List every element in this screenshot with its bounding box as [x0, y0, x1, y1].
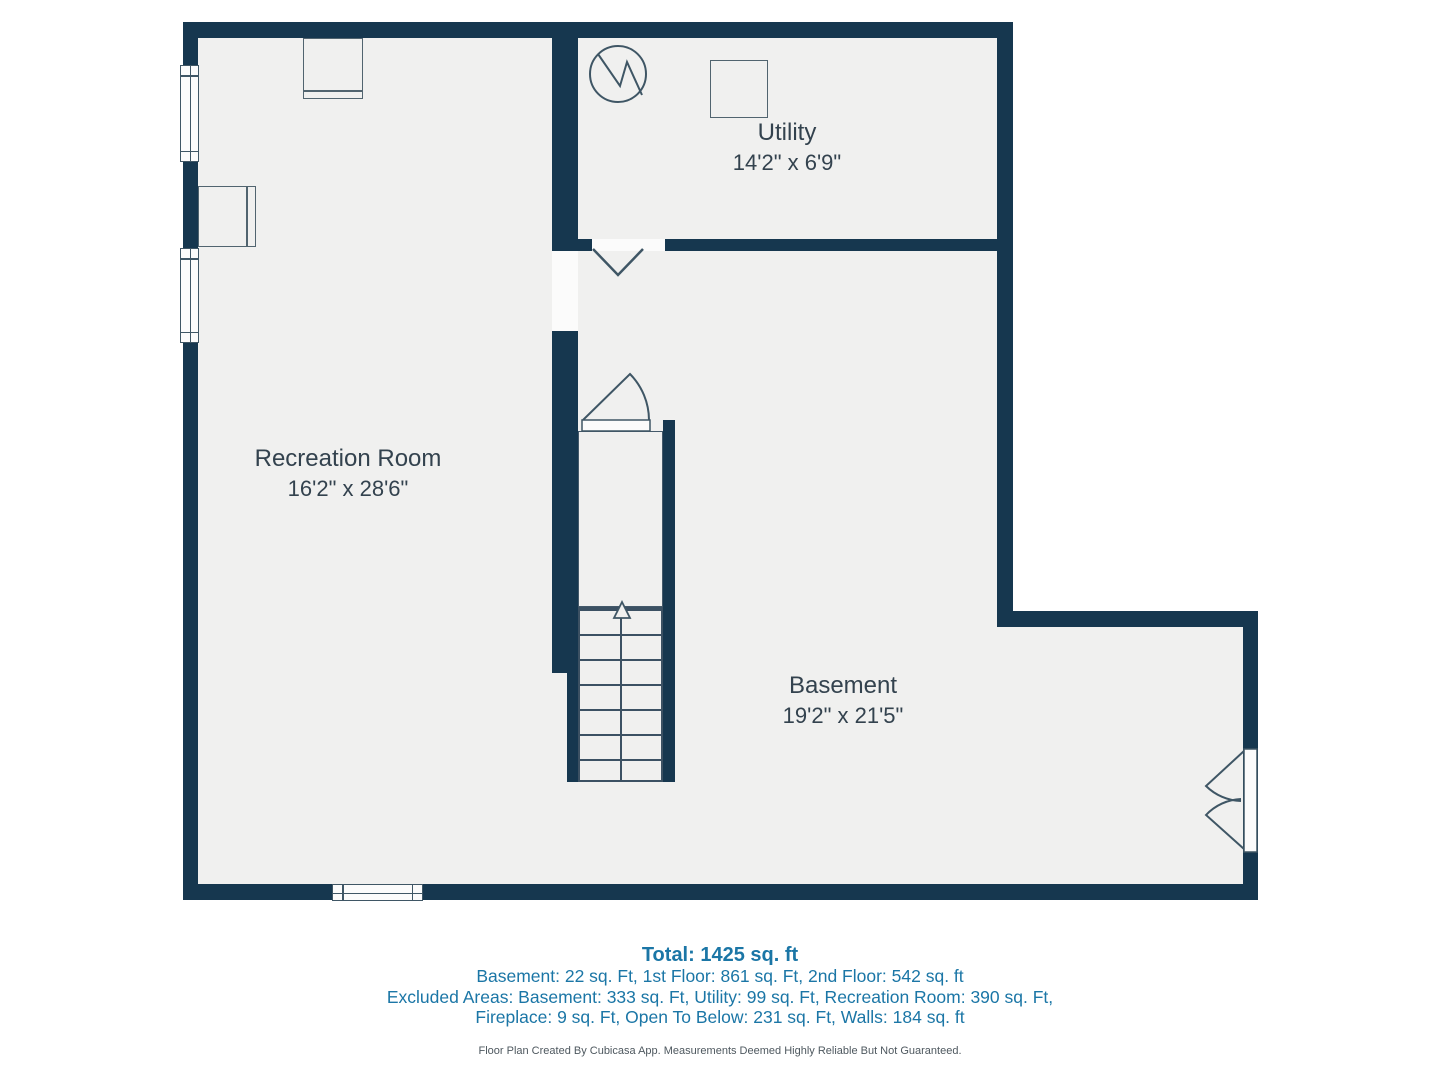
door-swing-icon — [582, 374, 650, 431]
excluded-areas-text-1: Excluded Areas: Basement: 333 sq. Ft, Ut… — [0, 987, 1440, 1008]
room-name: Recreation Room — [198, 444, 498, 474]
room-dimensions: 16'2" x 28'6" — [198, 474, 498, 503]
room-label-recreation: Recreation Room 16'2" x 28'6" — [198, 444, 498, 503]
room-label-utility: Utility 14'2" x 6'9" — [657, 118, 917, 177]
area-summary: Total: 1425 sq. ft Basement: 22 sq. Ft, … — [0, 944, 1440, 1057]
water-heater-icon — [590, 46, 646, 102]
floor-areas-text: Basement: 22 sq. Ft, 1st Floor: 861 sq. … — [0, 966, 1440, 987]
double-door-icon — [1206, 749, 1257, 852]
excluded-areas-text-2: Fireplace: 9 sq. Ft, Open To Below: 231 … — [0, 1007, 1440, 1028]
total-area-text: Total: 1425 sq. ft — [0, 944, 1440, 966]
room-name: Basement — [693, 671, 993, 701]
disclaimer-text: Floor Plan Created By Cubicasa App. Meas… — [0, 1045, 1440, 1057]
room-name: Utility — [657, 118, 917, 148]
room-dimensions: 14'2" x 6'9" — [657, 148, 917, 177]
room-label-basement: Basement 19'2" x 21'5" — [693, 671, 993, 730]
floor-plan: Utility 14'2" x 6'9" Recreation Room 16'… — [0, 0, 1440, 920]
stairs-up-arrow-icon — [614, 602, 630, 618]
room-dimensions: 19'2" x 21'5" — [693, 701, 993, 730]
bifold-door-icon — [593, 249, 643, 275]
